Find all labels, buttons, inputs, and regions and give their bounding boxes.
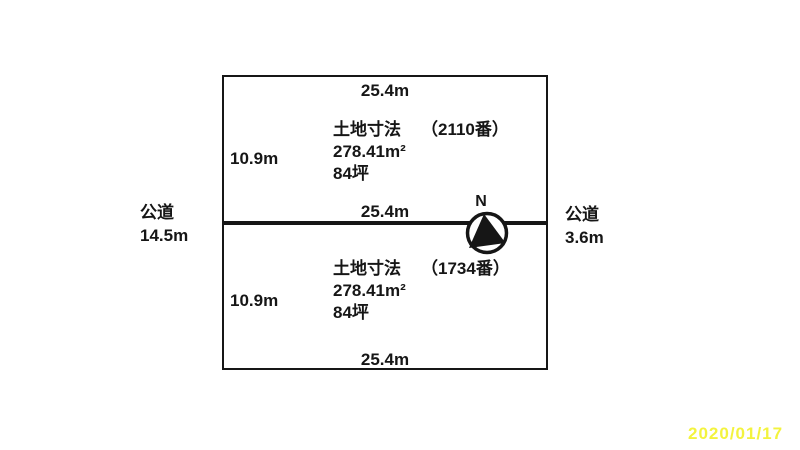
land-plot-diagram: 25.4m 土地寸法 （2110番） 278.41m² 84坪 10.9m 25… — [0, 0, 800, 450]
north-compass-icon: N — [458, 190, 516, 260]
parcel-area-tsubo: 84坪 — [333, 163, 509, 185]
middle-width-label: 25.4m — [340, 203, 430, 220]
parcel-area-sqm: 278.41m² — [333, 141, 509, 163]
parcel-title-row: 土地寸法 （1734番） — [333, 258, 510, 280]
parcel-area-tsubo: 84坪 — [333, 302, 510, 324]
top-width-label: 25.4m — [340, 82, 430, 99]
bottom-width-label: 25.4m — [340, 351, 430, 368]
road-right-width: 3.6m — [565, 226, 604, 249]
parcel-lot-number: （1734番） — [421, 258, 510, 280]
parcel-area-sqm: 278.41m² — [333, 280, 510, 302]
parcel-info-upper: 土地寸法 （2110番） 278.41m² 84坪 — [333, 119, 509, 185]
upper-side-length-label: 10.9m — [230, 150, 278, 167]
road-right-label: 公道 3.6m — [565, 203, 604, 249]
parcel-lot-number: （2110番） — [421, 119, 509, 141]
road-right-name: 公道 — [565, 203, 604, 226]
parcel-title-row: 土地寸法 （2110番） — [333, 119, 509, 141]
road-left-width: 14.5m — [140, 224, 188, 247]
parcel-title: 土地寸法 — [333, 258, 401, 280]
parcel-info-lower: 土地寸法 （1734番） 278.41m² 84坪 — [333, 258, 510, 324]
parcel-title: 土地寸法 — [333, 119, 401, 141]
lower-side-length-label: 10.9m — [230, 292, 278, 309]
date-stamp: 2020/01/17 — [688, 425, 783, 442]
road-left-name: 公道 — [140, 201, 188, 224]
road-left-label: 公道 14.5m — [140, 201, 188, 247]
north-letter: N — [475, 193, 487, 210]
